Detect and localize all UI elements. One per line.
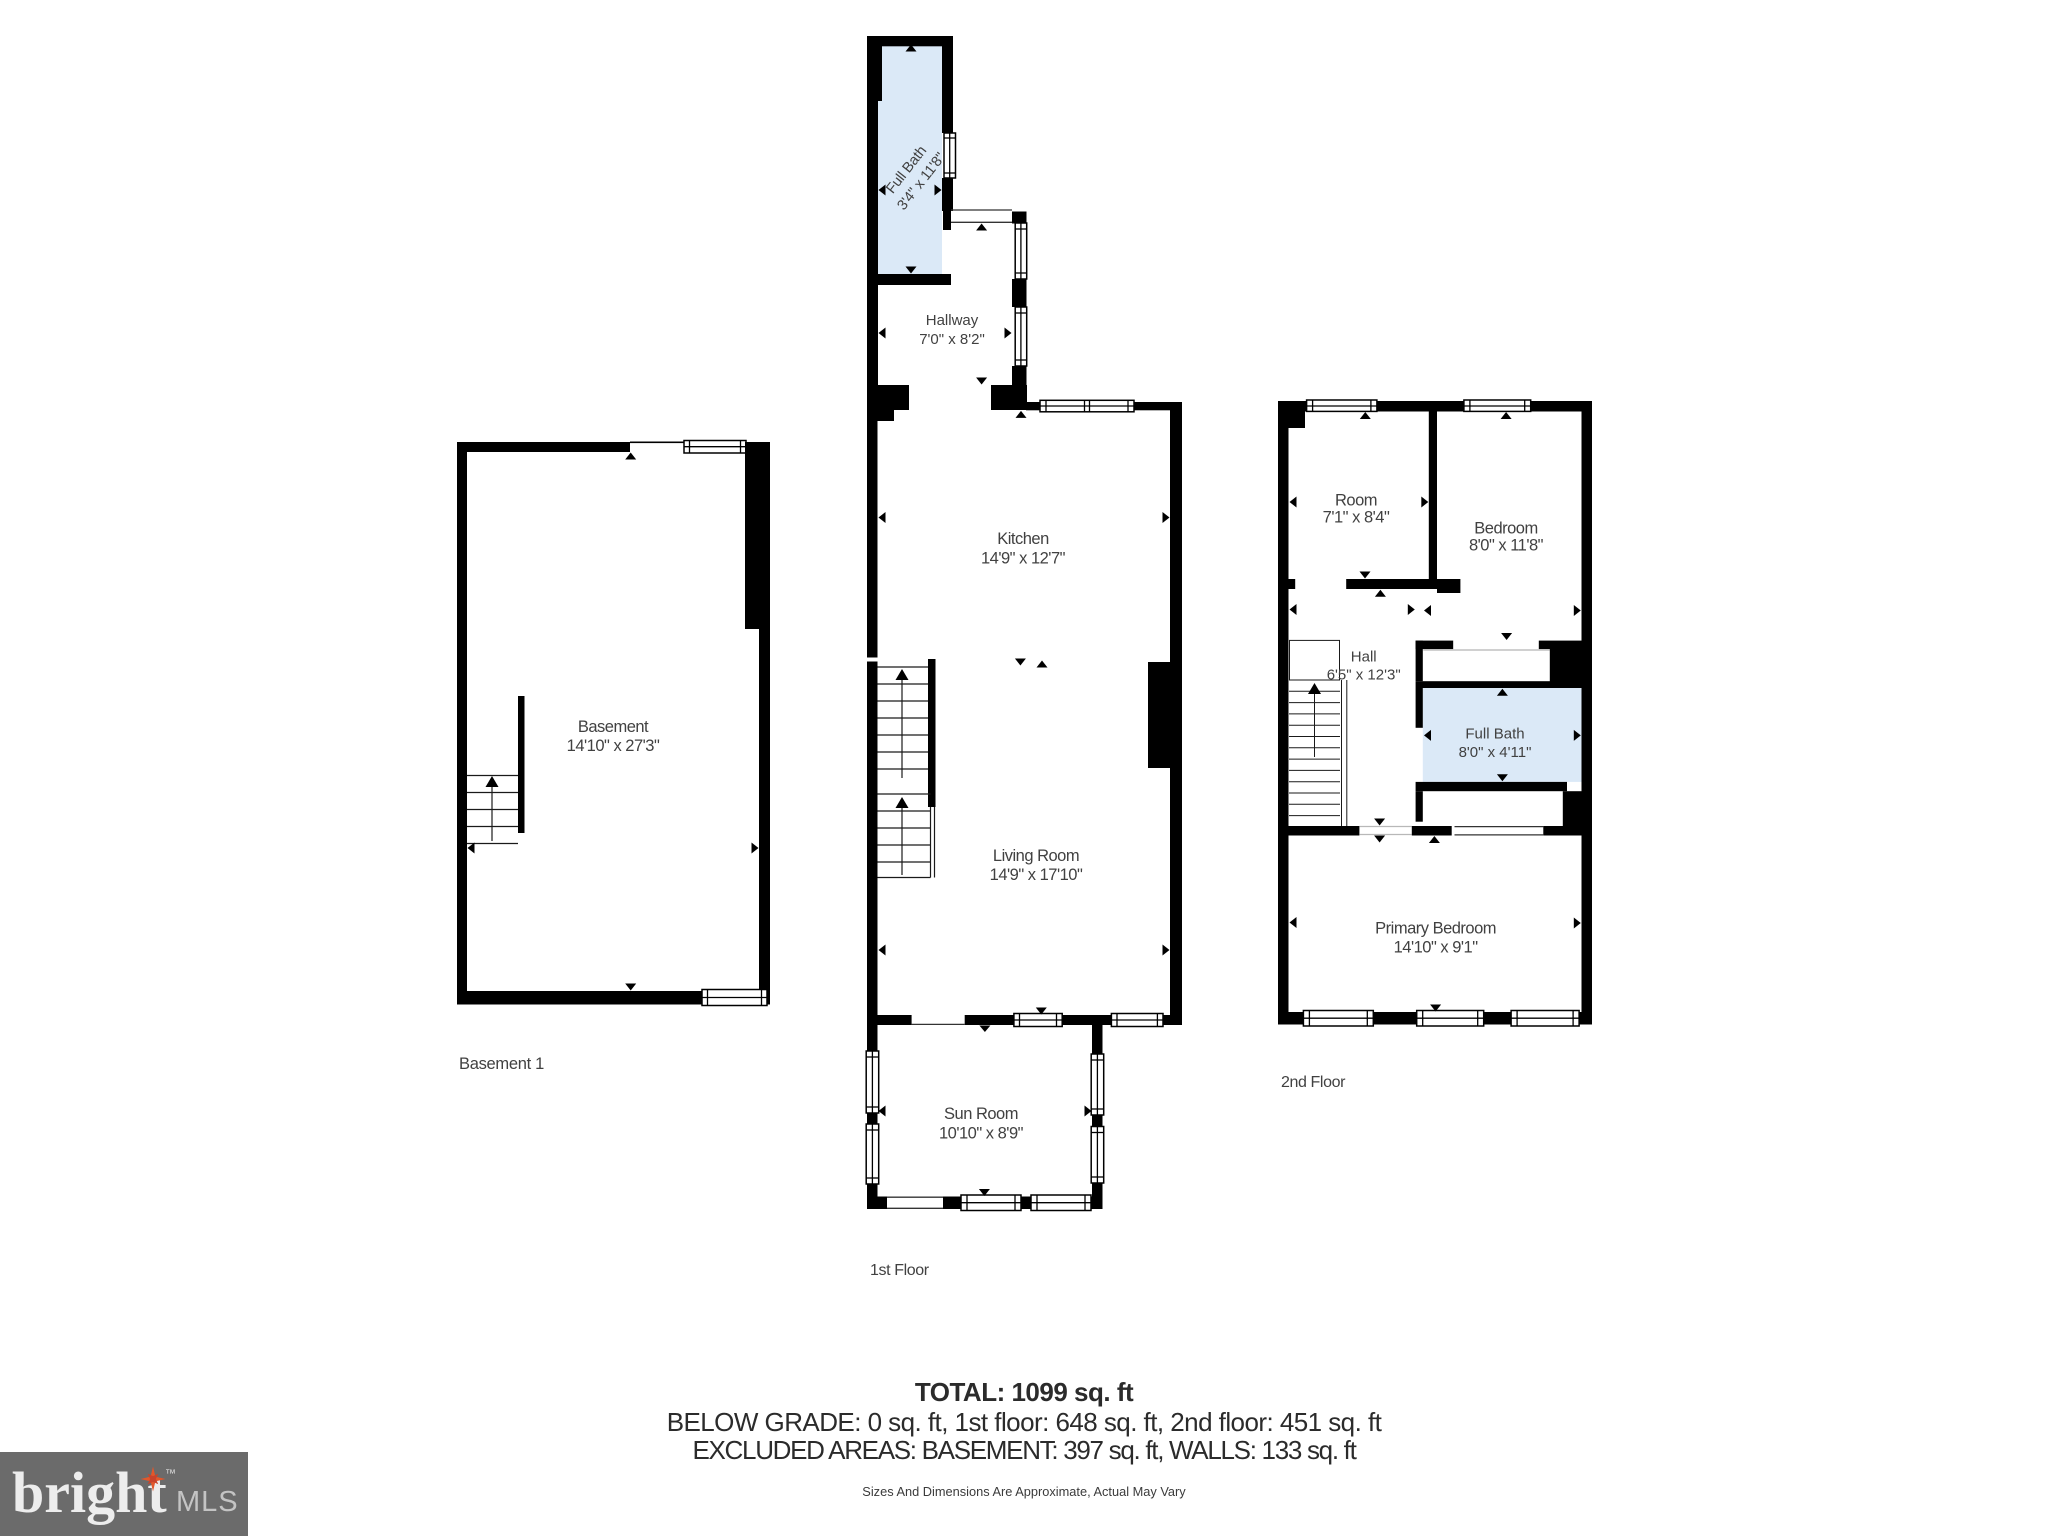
svg-text:1st Floor: 1st Floor — [870, 1262, 930, 1279]
svg-text:TOTAL: 1099 sq. ft: TOTAL: 1099 sq. ft — [915, 1377, 1134, 1407]
svg-text:BELOW GRADE: 0 sq. ft, 1st flo: BELOW GRADE: 0 sq. ft, 1st floor: 648 sq… — [667, 1407, 1383, 1437]
svg-text:Hallway: Hallway — [926, 312, 979, 329]
svg-text:14'9" x 12'7": 14'9" x 12'7" — [981, 550, 1066, 568]
svg-text:8'0" x 11'8": 8'0" x 11'8" — [1469, 537, 1544, 555]
svg-text:Hall: Hall — [1351, 649, 1377, 666]
svg-text:7'0" x 8'2": 7'0" x 8'2" — [919, 331, 985, 348]
svg-text:bright: bright — [12, 1460, 167, 1525]
svg-text:Bedroom: Bedroom — [1474, 520, 1537, 538]
svg-text:2nd Floor: 2nd Floor — [1281, 1074, 1346, 1091]
svg-text:Sun Room: Sun Room — [944, 1105, 1018, 1123]
svg-text:™: ™ — [165, 1468, 176, 1480]
svg-text:EXCLUDED AREAS: BASEMENT: 397: EXCLUDED AREAS: BASEMENT: 397 sq. ft, WA… — [692, 1435, 1357, 1465]
svg-text:Kitchen: Kitchen — [997, 530, 1049, 548]
svg-text:14'9" x 17'10": 14'9" x 17'10" — [990, 866, 1083, 884]
svg-text:10'10" x 8'9": 10'10" x 8'9" — [939, 1125, 1024, 1143]
svg-text:Room: Room — [1335, 492, 1377, 510]
svg-text:14'10" x 9'1": 14'10" x 9'1" — [1394, 939, 1479, 957]
svg-text:Sizes And Dimensions Are Appro: Sizes And Dimensions Are Approximate, Ac… — [862, 1484, 1186, 1499]
svg-text:8'0" x 4'11": 8'0" x 4'11" — [1459, 744, 1532, 761]
svg-text:14'10" x 27'3": 14'10" x 27'3" — [567, 737, 660, 755]
svg-text:Primary Bedroom: Primary Bedroom — [1375, 920, 1496, 938]
svg-text:Basement: Basement — [578, 718, 649, 736]
svg-text:Full Bath: Full Bath — [1465, 726, 1524, 743]
svg-text:Basement 1: Basement 1 — [459, 1055, 544, 1073]
svg-text:Living Room: Living Room — [993, 847, 1079, 865]
svg-text:7'1" x 8'4": 7'1" x 8'4" — [1323, 509, 1390, 527]
svg-text:6'5" x 12'3": 6'5" x 12'3" — [1327, 667, 1401, 684]
svg-text:MLS: MLS — [176, 1486, 239, 1518]
